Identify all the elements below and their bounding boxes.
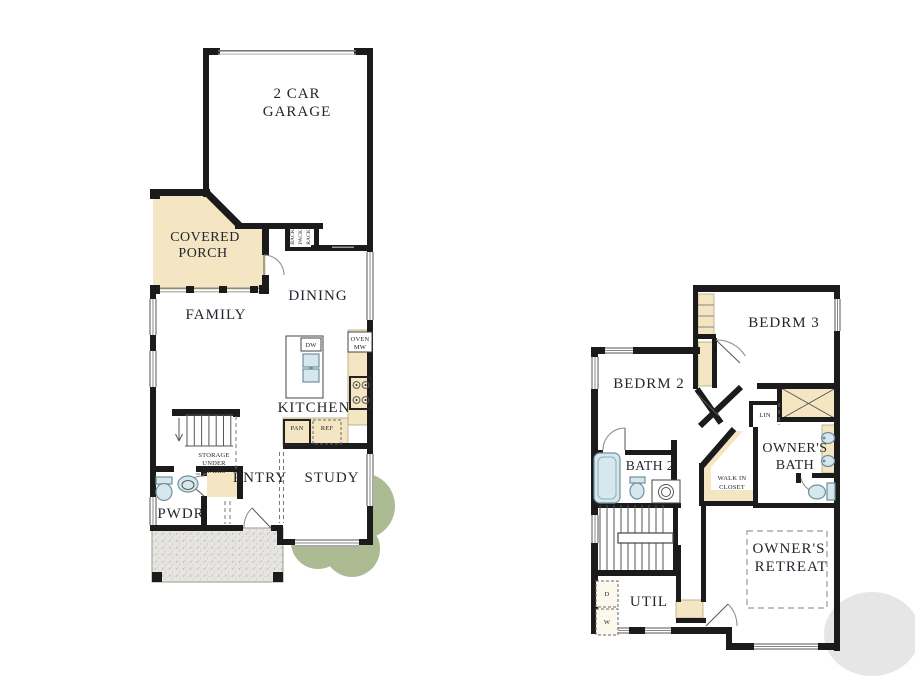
pwdr-label: PWDR — [157, 506, 204, 522]
dryer-label: D — [605, 591, 610, 598]
bedrm2-label: BEDRM 2 — [613, 376, 685, 392]
floor-plan-drawing: 2 CAR GARAGE COVERED PORCH FAMILY DINING… — [0, 0, 915, 688]
second-floor-plan: BEDRM 2 BEDRM 3 BATH 2 OWNER'S BATH OWNE… — [590, 285, 915, 676]
covered-porch-label-line1: COVERED — [170, 230, 240, 245]
dining-label: DINING — [288, 288, 347, 304]
back-rack-label-word3: RACK — [306, 229, 312, 245]
pantry-label: PAN — [290, 425, 303, 432]
garage-label-line2: GARAGE — [263, 104, 332, 120]
kitchen-label: KITCHEN — [278, 400, 351, 416]
owners-retreat-label-line1: OWNER'S — [752, 541, 825, 557]
owners-bath-label-line1: OWNER'S — [762, 441, 827, 456]
walk-in-closet-label-line2: CLOSET — [719, 484, 745, 491]
family-label: FAMILY — [186, 307, 247, 323]
washer-label: W — [604, 619, 611, 626]
study-label: STUDY — [304, 470, 359, 486]
entry-label: ENTRY — [233, 470, 287, 486]
storage-label-line2: UNDER — [202, 460, 226, 467]
dishwasher-label: DW — [305, 342, 317, 349]
owners-bath-label-line2: BATH — [776, 458, 815, 473]
first-floor-plan: 2 CAR GARAGE COVERED PORCH FAMILY DINING… — [148, 48, 395, 582]
garage-label-line1: 2 CAR — [273, 86, 320, 102]
floor-plan-page: 2 CAR GARAGE COVERED PORCH FAMILY DINING… — [0, 0, 915, 688]
util-label: UTIL — [630, 594, 668, 610]
owners-retreat-label-line2: RETREAT — [755, 559, 828, 575]
back-rack-label-word2: PACK — [298, 230, 304, 244]
walk-in-closet-label-line1: WALK IN — [718, 475, 747, 482]
covered-porch-label-line2: PORCH — [178, 246, 227, 261]
front-porch-floor — [152, 528, 283, 582]
back-rack-label-word1: BACK — [290, 229, 296, 245]
linen-label: LIN — [759, 412, 771, 419]
oven-label: OVEN — [351, 336, 370, 343]
storage-label-line1: STORAGE — [198, 452, 229, 459]
bedrm3-label: BEDRM 3 — [748, 315, 820, 331]
refrigerator-label: REF — [321, 425, 334, 432]
storage-label-line3: STAIRS — [202, 468, 225, 475]
bath2-label: BATH 2 — [626, 458, 674, 473]
microwave-label: MW — [354, 344, 367, 351]
